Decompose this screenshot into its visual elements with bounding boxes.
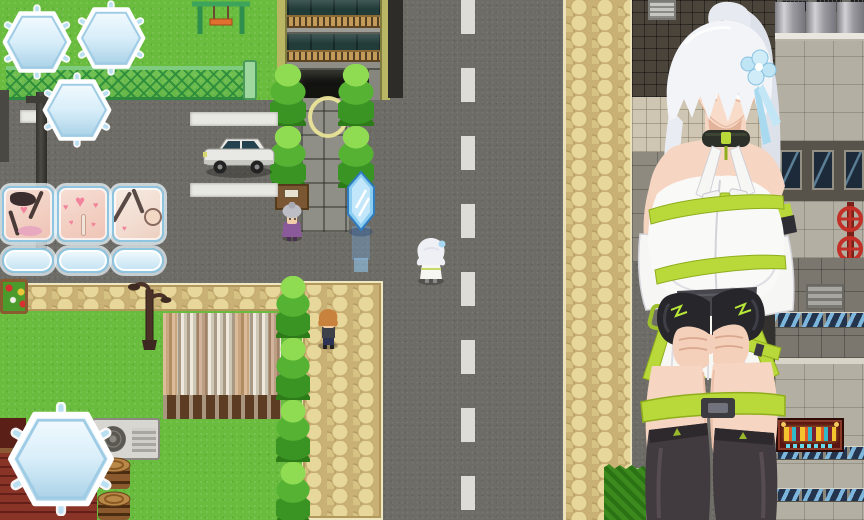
parked-car xyxy=(200,130,278,180)
scene-card-1[interactable]: ♥ xyxy=(2,186,54,274)
scene-count-pill-2 xyxy=(57,248,109,273)
building-balcony xyxy=(287,50,380,62)
industrial-window xyxy=(844,150,864,190)
swing-set xyxy=(190,0,252,36)
small-sign xyxy=(284,189,299,198)
industrial-window xyxy=(812,150,834,190)
building-window-row xyxy=(287,0,380,15)
scene-count-pill-1 xyxy=(2,248,54,273)
money-counter-badge xyxy=(40,72,114,148)
flag-counter-badge xyxy=(0,4,74,80)
fence-post xyxy=(243,60,257,100)
game-viewport[interactable]: ♥ ♥ ♥ ♥ ♥ ♥ ♥ xyxy=(0,0,864,520)
white-haired-player[interactable] xyxy=(412,236,450,286)
corrugated-wall-base xyxy=(163,395,281,419)
building-window-row xyxy=(287,34,380,50)
scene-thumbnail-2: ♥ ♥ ♥ ♥ ♥ xyxy=(57,186,109,242)
red-valve-wheels xyxy=(836,202,864,266)
utility-pole xyxy=(0,90,9,162)
heart-counter-badge xyxy=(74,0,148,76)
boy-npc[interactable] xyxy=(314,308,342,350)
ac-vents xyxy=(132,428,156,452)
scene-card-3[interactable]: ♥ xyxy=(112,186,164,274)
conifer-hedge-column xyxy=(276,276,310,520)
corrugated-shack-wall xyxy=(163,313,281,395)
scene-thumbnail-1: ♥ xyxy=(2,186,54,242)
flower-bed xyxy=(0,279,28,314)
scene-card-2[interactable]: ♥ ♥ ♥ ♥ ♥ xyxy=(57,186,109,274)
scene-count-pill-3 xyxy=(112,248,164,273)
building-balcony xyxy=(287,15,380,28)
parking-stripe xyxy=(190,183,278,197)
building-shadow xyxy=(388,0,403,98)
giant-white-haired-girl xyxy=(613,0,798,520)
wall-vent xyxy=(806,284,844,310)
scene-thumbnail-3: ♥ xyxy=(112,186,164,242)
save-crystal[interactable] xyxy=(344,170,378,274)
street-lamp xyxy=(128,280,172,352)
old-lady-npc[interactable] xyxy=(278,202,306,242)
deadline-badge xyxy=(4,402,118,516)
road-center-line xyxy=(461,0,475,520)
parking-stripe xyxy=(190,112,278,126)
